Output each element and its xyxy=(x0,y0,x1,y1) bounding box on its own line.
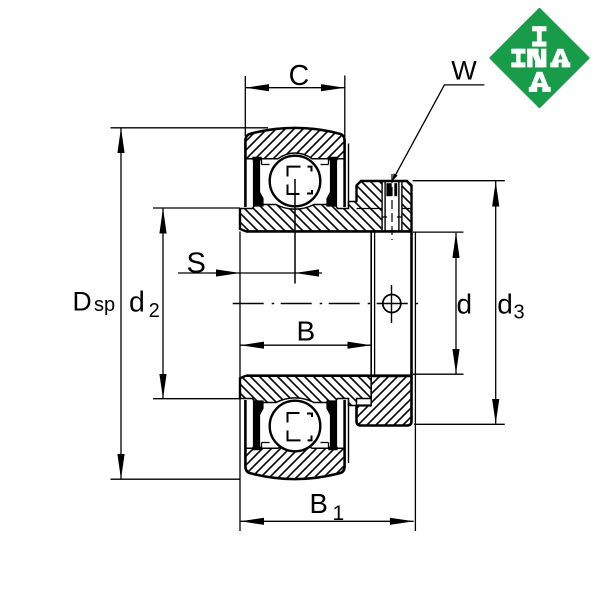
svg-text:B: B xyxy=(297,316,316,347)
svg-text:d: d xyxy=(457,289,473,320)
svg-text:3: 3 xyxy=(514,302,525,324)
svg-text:1: 1 xyxy=(333,502,345,525)
svg-text:W: W xyxy=(451,55,477,85)
svg-text:d: d xyxy=(129,287,145,319)
svg-text:d: d xyxy=(497,289,513,320)
svg-text:S: S xyxy=(187,248,206,280)
svg-text:sp: sp xyxy=(94,294,115,316)
svg-text:B: B xyxy=(310,488,328,519)
svg-text:D: D xyxy=(73,287,92,317)
svg-text:2: 2 xyxy=(149,300,160,322)
svg-text:C: C xyxy=(289,60,310,92)
